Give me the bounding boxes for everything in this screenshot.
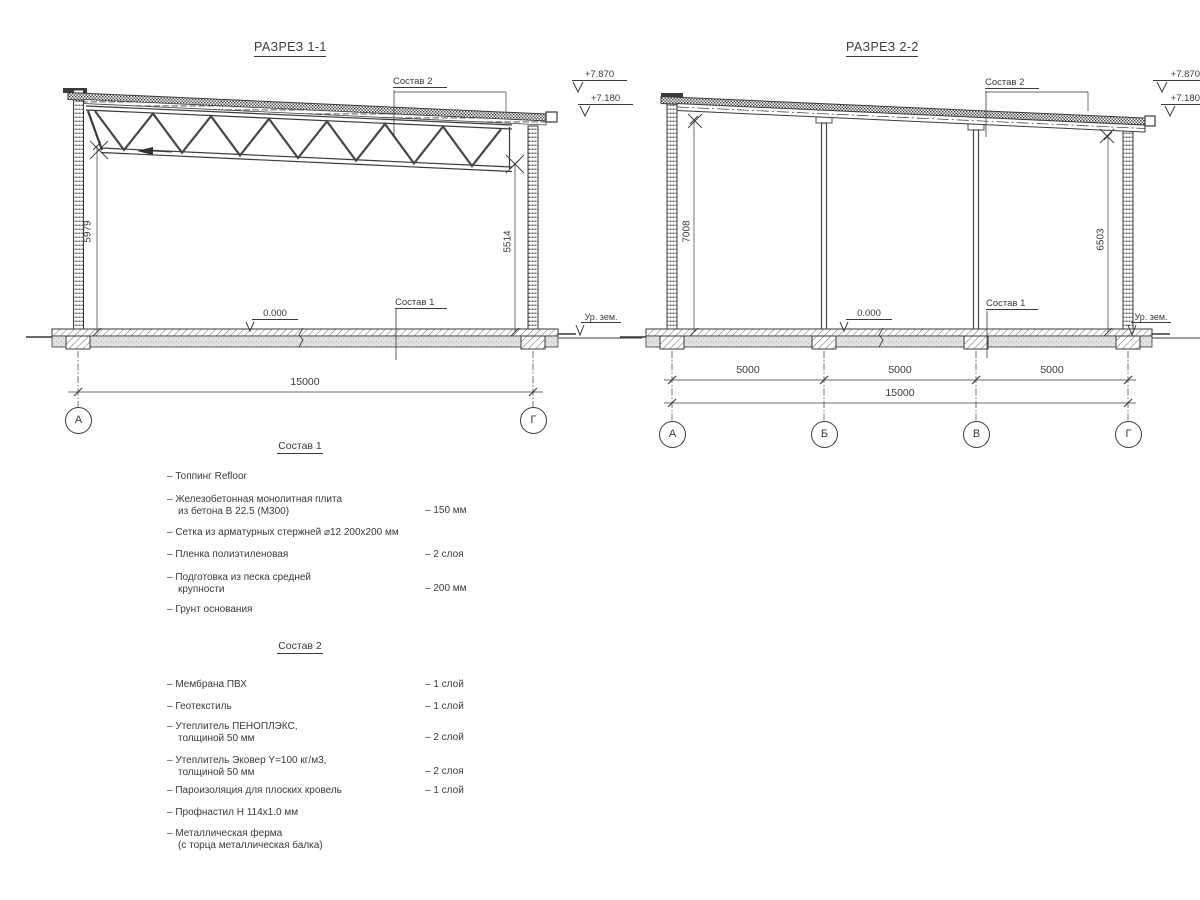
section2-axis-bubble-a: А xyxy=(659,421,686,448)
section2-dim-total: 15000 xyxy=(870,387,930,399)
item-value: – 2 слоя xyxy=(425,549,464,560)
section2-dim-span-2: 5000 xyxy=(870,364,930,376)
list-item: – Сетка из арматурных стержней ⌀12 200x2… xyxy=(167,527,399,539)
item-value: – 150 мм xyxy=(425,505,467,516)
list-item: – Пленка полиэтиленовая xyxy=(167,549,288,561)
section2-dim-span-3: 5000 xyxy=(1022,364,1082,376)
list-item: – Утеплитель ПЕНОПЛЭКС, толщиной 50 мм xyxy=(167,721,298,744)
section2-dim-left: 7008 xyxy=(682,210,693,254)
section1-roof-callout: Состав 2 xyxy=(393,76,447,88)
list-item: – Утеплитель Эковер Y=100 кг/м3, толщино… xyxy=(167,755,326,778)
item-value: – 2 слоя xyxy=(425,766,464,777)
item-text: – Профнастил Н 114x1.0 мм xyxy=(167,807,298,819)
section2-ground-label: Ур. зем. xyxy=(1131,312,1171,323)
item-value: – 2 слой xyxy=(425,732,464,743)
list-item: – Грунт основания xyxy=(167,604,252,616)
section1-title: РАЗРЕЗ 1-1 xyxy=(254,40,326,57)
section1-ground-label: Ур. зем. xyxy=(581,312,621,323)
list-item: – Железобетонная монолитная плита из бет… xyxy=(167,494,342,517)
section1-dim-left: 5979 xyxy=(83,210,94,254)
item-text-2: из бетона В 22.5 (М300) xyxy=(167,506,342,518)
section2-elevation-mid: +7.180 xyxy=(1161,93,1200,105)
item-text-2: (с торца металлическая балка) xyxy=(167,840,323,852)
item-text: – Пароизоляция для плоских кровель xyxy=(167,785,342,797)
item-text: – Утеплитель ПЕНОПЛЭКС, xyxy=(167,721,298,733)
item-text: – Металлическая ферма xyxy=(167,828,323,840)
sostav2-heading: Состав 2 xyxy=(277,640,323,654)
item-text: – Топпинг Refloor xyxy=(167,471,247,483)
section1-drawing xyxy=(26,82,642,407)
item-text: – Мембрана ПВХ xyxy=(167,679,247,691)
section1-zero-level: 0.000 xyxy=(252,308,298,320)
section2-axis-bubble-g: Г xyxy=(1115,421,1142,448)
item-text-2: толщиной 50 мм xyxy=(167,767,326,779)
section2-title: РАЗРЕЗ 2-2 xyxy=(846,40,918,57)
list-item: – Топпинг Refloor xyxy=(167,471,247,483)
list-item: – Пароизоляция для плоских кровель xyxy=(167,785,342,797)
list-item: – Профнастил Н 114x1.0 мм xyxy=(167,807,298,819)
section1-axis-bubble-a: А xyxy=(65,407,92,434)
section2-axis-bubble-v: В xyxy=(963,421,990,448)
list-item: – Мембрана ПВХ xyxy=(167,679,247,691)
sostav1-heading: Состав 1 xyxy=(277,440,323,454)
section2-dim-right: 6503 xyxy=(1096,218,1107,262)
section1-dim-right: 5514 xyxy=(503,220,514,264)
item-value: – 1 слой xyxy=(425,701,464,712)
item-text: – Грунт основания xyxy=(167,604,252,616)
section2-elevation-top: +7.870 xyxy=(1153,69,1200,81)
list-item: – Подготовка из песка средней крупности xyxy=(167,572,311,595)
section1-dim-total: 15000 xyxy=(275,376,335,388)
list-item: – Геотекстиль xyxy=(167,701,232,713)
item-value: – 200 мм xyxy=(425,583,467,594)
item-text: – Пленка полиэтиленовая xyxy=(167,549,288,561)
section2-floor-callout: Состав 1 xyxy=(986,298,1038,310)
item-value: – 1 слой xyxy=(425,785,464,796)
item-value: – 1 слой xyxy=(425,679,464,690)
list-item: – Металлическая ферма (с торца металличе… xyxy=(167,828,323,851)
section1-elevation-mid: +7.180 xyxy=(578,93,633,105)
section2-dim-span-1: 5000 xyxy=(718,364,778,376)
item-text: – Сетка из арматурных стержней ⌀12 200x2… xyxy=(167,527,399,539)
section1-floor-callout: Состав 1 xyxy=(395,297,447,309)
drawing-sheet: РАЗРЕЗ 1-1 Состав 2 +7.870 +7.180 5979 5… xyxy=(0,0,1200,900)
section1-elevation-top: +7.870 xyxy=(572,69,627,81)
item-text: – Подготовка из песка средней xyxy=(167,572,311,584)
item-text: – Утеплитель Эковер Y=100 кг/м3, xyxy=(167,755,326,767)
section1-axis-bubble-g: Г xyxy=(520,407,547,434)
item-text: – Железобетонная монолитная плита xyxy=(167,494,342,506)
item-text-2: толщиной 50 мм xyxy=(167,733,298,745)
section2-roof-callout: Состав 2 xyxy=(985,77,1039,89)
item-text: – Геотекстиль xyxy=(167,701,232,713)
section2-zero-level: 0.000 xyxy=(846,308,892,320)
item-text-2: крупности xyxy=(167,584,311,596)
section2-axis-bubble-b: Б xyxy=(811,421,838,448)
